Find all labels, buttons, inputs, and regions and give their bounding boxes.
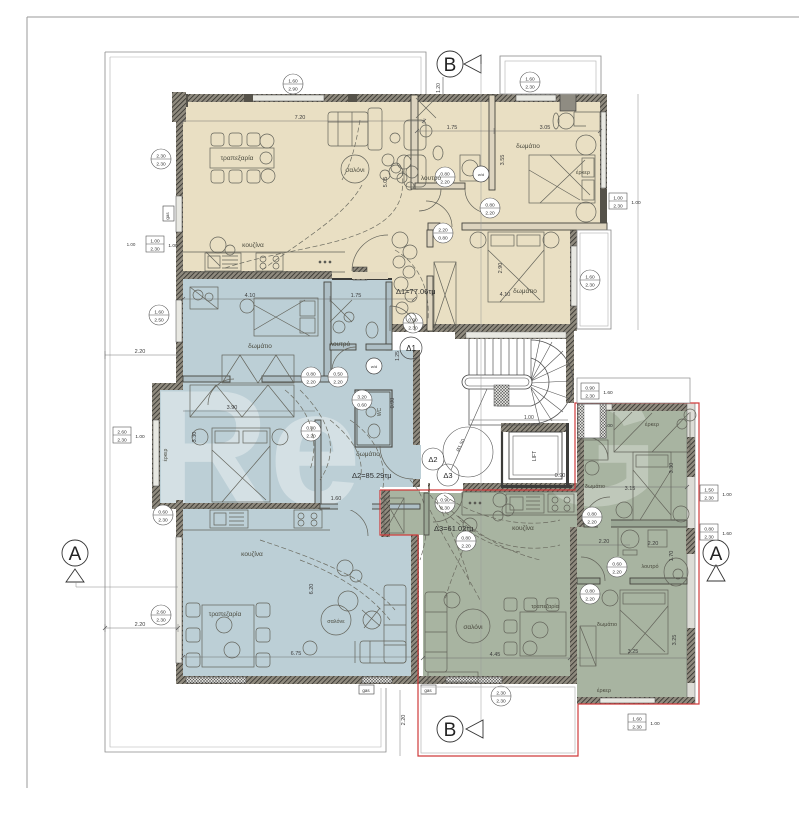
svg-text:3.55: 3.55 [500, 155, 506, 166]
svg-text:σαλόνε: σαλόνε [327, 618, 345, 625]
svg-text:2.20: 2.20 [401, 715, 407, 726]
svg-text:1.00: 1.00 [631, 200, 641, 206]
svg-text:1.60: 1.60 [154, 310, 164, 316]
svg-text:1.60: 1.60 [525, 77, 535, 83]
svg-text:λουτρό: λουτρό [641, 563, 658, 570]
svg-text:Δ3=61.02τμ: Δ3=61.02τμ [434, 524, 474, 533]
svg-text:B: B [444, 720, 457, 741]
svg-text:δωμάτιο: δωμάτιο [248, 342, 272, 350]
svg-text:2.90: 2.90 [288, 87, 298, 93]
svg-text:4.10: 4.10 [500, 292, 511, 298]
svg-text:2.30: 2.30 [156, 154, 166, 160]
svg-text:2.20: 2.20 [585, 597, 595, 603]
svg-text:3.30: 3.30 [669, 463, 675, 474]
svg-text:w/d: w/d [478, 172, 484, 177]
svg-text:2.30: 2.30 [585, 283, 595, 289]
svg-text:2.30: 2.30 [496, 691, 506, 697]
svg-text:gas: gas [424, 688, 432, 693]
svg-text:2.20: 2.20 [612, 570, 622, 576]
svg-text:2.20: 2.20 [461, 544, 471, 550]
svg-text:τραπεζαρία: τραπεζαρία [531, 604, 559, 610]
svg-text:2.20: 2.20 [333, 380, 343, 386]
svg-text:0.90: 0.90 [440, 498, 450, 504]
svg-text:2.20: 2.20 [438, 228, 448, 234]
svg-text:2.20: 2.20 [648, 541, 659, 547]
svg-text:3.25: 3.25 [672, 635, 678, 646]
svg-text:2.30: 2.30 [156, 162, 166, 168]
svg-text:2.20: 2.20 [135, 349, 146, 355]
svg-text:5.05: 5.05 [383, 177, 389, 188]
svg-text:w/d: w/d [371, 364, 377, 369]
svg-text:1.60: 1.60 [632, 717, 642, 723]
svg-text:Δ3: Δ3 [443, 471, 452, 480]
svg-text:2.20: 2.20 [306, 434, 316, 440]
svg-text:0.50: 0.50 [333, 372, 343, 378]
svg-text:gas: gas [165, 212, 170, 220]
svg-text:δωμάτιο: δωμάτιο [516, 142, 540, 150]
svg-text:2.20: 2.20 [485, 211, 495, 217]
svg-text:WC: WC [377, 407, 383, 416]
svg-text:0.80: 0.80 [306, 372, 316, 378]
svg-text:0.90: 0.90 [390, 398, 396, 409]
svg-text:κουζίνα: κουζίνα [512, 524, 534, 532]
svg-text:A: A [710, 544, 723, 565]
svg-text:2.20: 2.20 [587, 520, 597, 526]
svg-text:1.00: 1.00 [722, 492, 732, 498]
svg-text:κουζίνα: κουζίνα [241, 550, 263, 558]
svg-text:Δ2: Δ2 [428, 455, 437, 464]
svg-text:2.90: 2.90 [498, 263, 504, 274]
svg-text:0.80: 0.80 [587, 512, 597, 518]
svg-text:2.20: 2.20 [440, 180, 450, 186]
svg-text:3.90: 3.90 [227, 405, 238, 411]
svg-text:2.20: 2.20 [306, 380, 316, 386]
svg-text:2.30: 2.30 [158, 518, 168, 524]
svg-text:2.20: 2.20 [135, 622, 146, 628]
svg-text:2.30: 2.30 [496, 699, 506, 705]
svg-text:δωμάτιο: δωμάτιο [585, 483, 605, 490]
svg-text:2.60: 2.60 [156, 610, 166, 616]
svg-text:1.00: 1.00 [168, 243, 178, 249]
svg-text:2.30: 2.30 [117, 438, 127, 444]
svg-text:1.25: 1.25 [395, 351, 401, 361]
svg-text:2.50: 2.50 [154, 318, 164, 324]
svg-text:0.80: 0.80 [461, 536, 471, 542]
svg-text:2.30: 2.30 [408, 326, 418, 332]
svg-text:4.45: 4.45 [490, 652, 501, 658]
svg-text:Δ1: Δ1 [406, 344, 416, 353]
svg-text:0.60: 0.60 [612, 562, 622, 568]
svg-text:2.30: 2.30 [585, 394, 595, 400]
svg-text:0.60: 0.60 [158, 510, 168, 516]
svg-text:3.30: 3.30 [192, 432, 198, 443]
svg-text:0.80: 0.80 [485, 203, 495, 209]
svg-text:δωμάτιο: δωμάτιο [597, 621, 617, 628]
svg-text:έρκερ: έρκερ [597, 687, 611, 694]
svg-text:0.90: 0.90 [585, 386, 595, 392]
svg-text:λουτρό: λουτρό [421, 174, 442, 182]
svg-text:0.80: 0.80 [704, 527, 714, 533]
svg-text:2.30: 2.30 [156, 618, 166, 624]
svg-text:έρκερ: έρκερ [162, 449, 169, 462]
svg-text:έρκερ: έρκερ [645, 421, 659, 428]
svg-text:1.60: 1.60 [722, 531, 732, 537]
svg-text:1.60: 1.60 [585, 275, 595, 281]
svg-text:3.25: 3.25 [628, 649, 639, 655]
svg-text:2.30: 2.30 [704, 535, 714, 541]
svg-text:2.30: 2.30 [150, 247, 160, 253]
svg-text:7.20: 7.20 [295, 115, 306, 121]
svg-text:6.20: 6.20 [309, 584, 315, 595]
svg-text:A: A [69, 544, 82, 565]
svg-text:1.70: 1.70 [669, 551, 675, 562]
svg-text:0.80: 0.80 [438, 236, 448, 242]
svg-text:2.20: 2.20 [599, 539, 610, 545]
svg-text:1.00: 1.00 [613, 196, 623, 202]
svg-text:1.20: 1.20 [436, 83, 442, 93]
svg-text:1.60: 1.60 [288, 79, 298, 85]
svg-text:κουζίνα: κουζίνα [242, 241, 264, 249]
svg-text:Δ1=77.06τμ: Δ1=77.06τμ [396, 287, 436, 296]
svg-text:1.75: 1.75 [447, 125, 458, 131]
svg-text:1.00: 1.00 [127, 242, 136, 247]
svg-text:1.00: 1.00 [650, 721, 660, 727]
svg-text:τραπεζαρία: τραπεζαρία [209, 610, 242, 618]
svg-text:LIFT: LIFT [532, 451, 538, 461]
svg-text:2.30: 2.30 [704, 496, 714, 502]
svg-text:σαλόνι: σαλόνι [345, 166, 365, 174]
svg-text:1.50: 1.50 [704, 488, 714, 494]
svg-text:2.30: 2.30 [613, 204, 623, 210]
svg-text:λουτρό: λουτρό [330, 340, 351, 348]
svg-text:3.05: 3.05 [540, 125, 551, 131]
svg-text:έρκερ: έρκερ [576, 169, 590, 176]
svg-text:2.60: 2.60 [117, 430, 127, 436]
svg-text:1.00: 1.00 [524, 415, 534, 421]
svg-text:3.20: 3.20 [357, 395, 367, 401]
svg-text:1.60: 1.60 [331, 496, 342, 502]
svg-text:6.75: 6.75 [291, 651, 302, 657]
svg-text:δωμάτιο: δωμάτιο [513, 287, 537, 295]
svg-text:2.30: 2.30 [525, 85, 535, 91]
svg-text:4.10: 4.10 [245, 293, 256, 299]
svg-text:1.75: 1.75 [351, 293, 362, 299]
svg-text:δωμάτιο: δωμάτιο [356, 450, 380, 458]
svg-text:1.00: 1.00 [135, 434, 145, 440]
svg-text:0.80: 0.80 [440, 172, 450, 178]
svg-text:1.00: 1.00 [150, 239, 160, 245]
svg-text:B: B [444, 55, 457, 76]
svg-text:2.30: 2.30 [632, 725, 642, 731]
svg-text:τραπεξαρία: τραπεξαρία [221, 154, 254, 162]
svg-text:0.90: 0.90 [555, 473, 566, 479]
svg-text:1.60: 1.60 [603, 390, 613, 396]
svg-text:Δ2=85.29τμ: Δ2=85.29τμ [352, 471, 392, 480]
svg-text:0.80: 0.80 [585, 589, 595, 595]
svg-text:3.15: 3.15 [625, 486, 636, 492]
svg-text:gas: gas [362, 688, 370, 693]
svg-text:σαλόνι: σαλόνι [463, 623, 483, 631]
svg-text:0.60: 0.60 [357, 403, 367, 409]
